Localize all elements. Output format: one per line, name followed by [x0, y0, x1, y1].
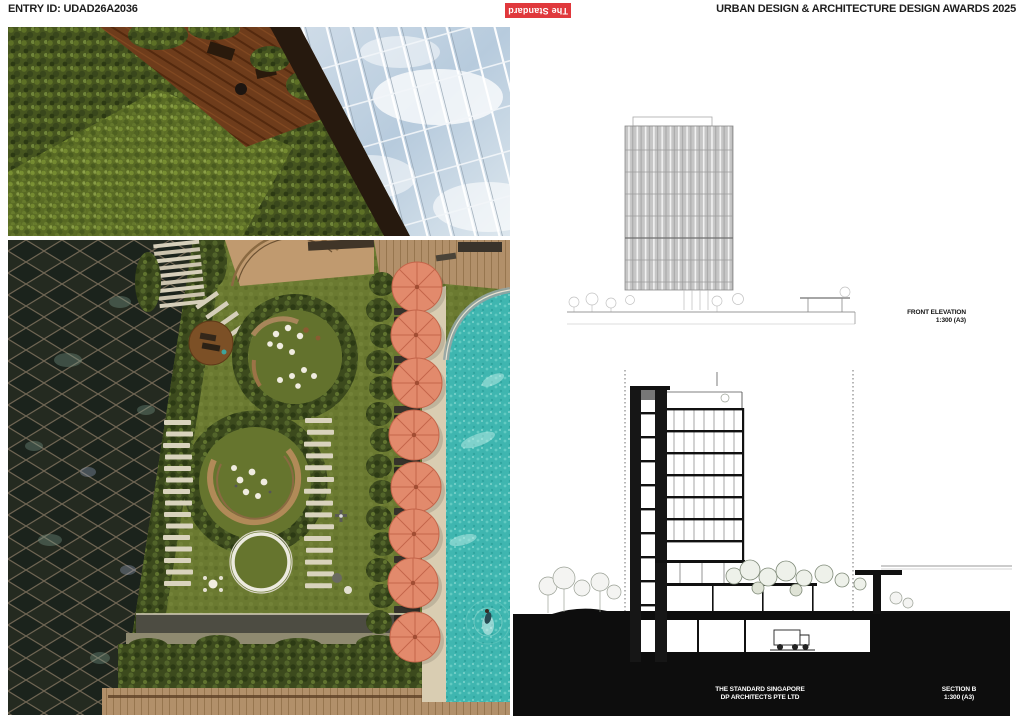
- stepping-stones-left: [163, 420, 193, 586]
- stepping-stones-right: [304, 418, 334, 588]
- front-elevation-scale: 1:300 (A3): [907, 317, 966, 325]
- firm-name: DP ARCHITECTS PTE LTD: [702, 694, 818, 702]
- elevation-trees: [569, 293, 744, 312]
- section-scale: 1:300 (A3): [928, 694, 990, 702]
- drawings-graphic: [512, 0, 1024, 723]
- front-elevation-label: FRONT ELEVATION 1:300 (A3): [907, 309, 966, 325]
- project-name: THE STANDARD SINGAPORE: [702, 686, 818, 694]
- basement-void: [633, 620, 870, 652]
- front-elevation-drawing: [567, 117, 855, 324]
- lower-lawn-circle: [191, 419, 319, 547]
- white-ring-feature: [230, 531, 292, 593]
- right-terrace: [855, 566, 1012, 614]
- upper-lawn-circle: [240, 302, 350, 412]
- entry-id-text: ENTRY ID: UDAD26A2036: [8, 3, 138, 15]
- front-elevation-title: FRONT ELEVATION: [907, 309, 966, 317]
- round-timber-deck: [189, 321, 233, 365]
- photo-top-graphic: [8, 27, 510, 236]
- project-credits: THE STANDARD SINGAPORE DP ARCHITECTS PTE…: [702, 686, 818, 702]
- photo-green-wall-glass-facade: [8, 27, 510, 236]
- section-wall-left: [630, 386, 641, 662]
- photo-rooftop-garden-pool: [8, 240, 510, 715]
- elevation-canopy: [800, 287, 850, 312]
- section-drawing: [513, 370, 1012, 716]
- site-trees-left: [539, 567, 621, 613]
- roof-garden-trees: [726, 560, 866, 596]
- section-wall-right: [655, 386, 667, 662]
- section-title: SECTION B: [928, 686, 990, 694]
- architectural-drawings-panel: [512, 0, 1024, 723]
- awards-presentation-board: ENTRY ID: UDAD26A2036 The Standard URBAN…: [0, 0, 1024, 723]
- photo-bottom-graphic: [8, 240, 510, 715]
- section-label: SECTION B 1:300 (A3): [928, 686, 990, 702]
